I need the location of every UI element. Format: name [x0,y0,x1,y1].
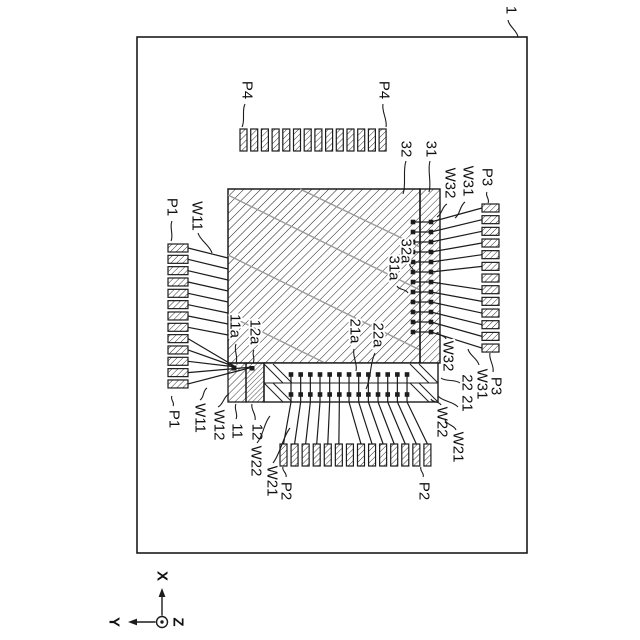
pad-p2 [369,444,376,466]
label-W11: W11 [192,403,209,433]
bond-dot-3xa [429,220,434,225]
label-22a: 22a [370,322,387,348]
pad-p1 [168,278,188,286]
z-axis-label: Z [170,617,187,626]
pad-p4 [304,129,311,151]
pad-p1 [168,301,188,309]
bond-dot-3xa [429,330,434,335]
pad-p1 [168,255,188,263]
label-22-21: 22 21 [459,374,476,412]
label-P2: P2 [416,482,433,500]
y-axis-label: Y [106,617,123,627]
pad-p4 [240,129,247,151]
z-axis-dot [160,620,163,623]
pad-p2 [335,444,342,466]
pad-p3 [482,251,499,259]
pad-p4 [358,129,365,151]
pad-p1 [168,323,188,331]
label-W22: W22 [434,407,451,438]
pad-p4 [261,129,268,151]
bond-dot-3xa [429,310,434,315]
pad-p2 [380,444,387,466]
pad-p3 [482,204,499,212]
pad-p4 [294,129,301,151]
pad-p2 [291,444,298,466]
bond-dot-3xa [429,290,434,295]
bond-dot-2xa [376,392,381,397]
bond-dot-2xa [366,392,371,397]
pad-p4 [315,129,322,151]
bond-dot-2xa [385,372,390,377]
bond-dot-3xa [429,260,434,265]
label-32: 32 [398,141,415,158]
bond-dot-2xa [395,392,400,397]
bond-dot-2xa [318,372,323,377]
pad-p3 [482,274,499,282]
pad-p3 [482,344,499,352]
label-11a: 11a [227,314,244,339]
pad-p3 [482,309,499,317]
pad-p2 [313,444,320,466]
bond-dot-3xa [411,220,416,225]
bond-dot-3xa [429,250,434,255]
label-W31: W31 [460,166,477,197]
label-W22: W22 [248,446,265,477]
pad-p3 [482,216,499,224]
pad-p2 [402,444,409,466]
label-P1: P1 [164,198,181,216]
label-31: 31 [423,141,440,158]
pad-p3 [482,227,499,235]
pad-p4 [326,129,333,151]
label-P4: P4 [239,81,256,99]
bond-dot-2xa [337,372,342,377]
pad-p4 [283,129,290,151]
bond-dot-2xa [308,392,313,397]
pad-p2 [357,444,364,466]
bond-dot-3xa [429,320,434,325]
strip-31 [420,189,440,363]
label-21a: 21a [347,318,364,344]
label-11: 11 [229,423,246,439]
bond-dot-2xa [356,372,361,377]
pad-p2 [391,444,398,466]
bond-dot-2xa [347,372,352,377]
bond-dot-3xa [411,310,416,315]
bond-dot-2xa [298,392,303,397]
label-W12: W12 [211,410,228,441]
pad-p3 [482,297,499,305]
bond-dot-3xa [411,330,416,335]
bond-dot-2xa [298,372,303,377]
bond-dot-2xa [289,372,294,377]
figure-svg: 1P4P4P1W113231W32W31P311a12a21a22a31a32a… [0,0,640,640]
bond-dot-2xa [376,372,381,377]
bond-dot-3xa [429,270,434,275]
bond-dot-2xa [308,372,313,377]
label-P3: P3 [479,168,496,186]
pad-p4 [347,129,354,151]
pad-p2 [424,444,431,466]
bond-dot-3xa [429,300,434,305]
pad-p4 [272,129,279,151]
pad-p2 [413,444,420,466]
pad-p3 [482,262,499,270]
label-12a: 12a [247,319,264,345]
label-1: 1 [503,6,520,14]
label-W32: W32 [442,168,459,199]
bond-dot-2xa [337,392,342,397]
bond-dot-3xa [429,240,434,245]
bond-dot-2xa [405,372,410,377]
label-W21: W21 [450,432,467,463]
bond-dot-3xa [411,320,416,325]
label-32a: 32a [398,238,415,264]
bond-dot-3xa [429,280,434,285]
bond-dot-2xa [327,392,332,397]
bond-dot-2xa [395,372,400,377]
label-P2: P2 [278,482,295,500]
label-P1: P1 [166,410,183,428]
bond-dot-2xa [385,392,390,397]
x-axis-label: X [154,571,171,581]
bond-dot-3xa [411,290,416,295]
bond-dot-2xa [327,372,332,377]
bond-dot-2xa [347,392,352,397]
pad-p3 [482,332,499,340]
pad-p2 [302,444,309,466]
label-P4: P4 [376,81,393,99]
bond-dot-3xa [411,280,416,285]
cell-12 [246,363,264,402]
pad-p1 [168,369,188,377]
pad-p3 [482,239,499,247]
bond-dot-2xa [289,392,294,397]
bond-dot-2xa [318,392,323,397]
pad-p1 [168,346,188,354]
label-W32: W32 [440,341,457,372]
pad-p1 [168,312,188,320]
pad-p2 [346,444,353,466]
pad-p4 [379,129,386,151]
pad-p4 [251,129,258,151]
bond-dot-3xa [411,300,416,305]
bond-dot-2xa [405,392,410,397]
pad-p1 [168,380,188,388]
pad-p1 [168,289,188,297]
bond-dot-3xa [411,230,416,235]
label-P3: P3 [488,377,505,395]
pad-p1 [168,357,188,365]
pad-p1 [168,267,188,275]
pad-p3 [482,286,499,294]
pad-p3 [482,321,499,329]
pad-p2 [324,444,331,466]
pad-p4 [368,129,375,151]
pad-p1 [168,244,188,252]
bond-dot-2xa [356,392,361,397]
bond-dot-3xa [429,230,434,235]
pad-p4 [336,129,343,151]
label-W11: W11 [189,201,206,231]
patent-figure-page: 1P4P4P1W113231W32W31P311a12a21a22a31a32a… [0,0,640,640]
wire-w2x [339,375,340,445]
pad-p1 [168,335,188,343]
